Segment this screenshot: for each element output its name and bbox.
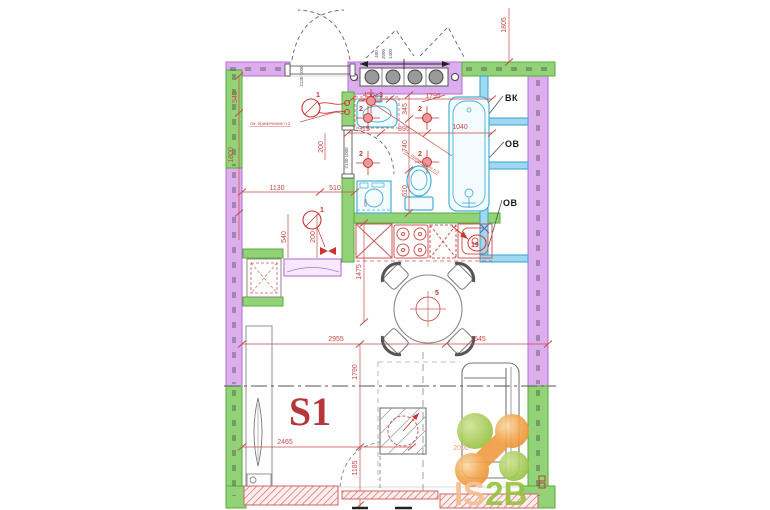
tag-19: 19: [471, 242, 479, 249]
dim-345: 345: [402, 103, 409, 115]
dim-2465: 2465: [277, 439, 293, 446]
tag-5: 5: [435, 290, 439, 297]
tag-2a: 2: [359, 106, 363, 113]
dim-1790: 1790: [352, 364, 359, 380]
dim-window-a: 400: [374, 50, 379, 58]
wall-bottom-left-corner: [226, 486, 246, 508]
note-2: см. примечание п.2: [250, 121, 291, 126]
apartment-label: S1: [289, 389, 331, 434]
dim-1800: 1800: [228, 147, 235, 163]
floor-plan-page: ВК ОВ ОВ: [0, 0, 770, 510]
dim-1475: 1475: [356, 264, 363, 280]
wall-niche-stub-bottom: [243, 297, 283, 306]
stove: [394, 225, 428, 258]
dim-1130: 1130: [269, 185, 284, 192]
dim-entry-door: 2130 1000: [299, 65, 304, 87]
shaft-label-ov1: ОВ: [505, 139, 520, 149]
dim-bath-door: 2130 1000: [344, 147, 349, 169]
dim-895: 895: [398, 126, 410, 133]
dim-200-a: 200: [318, 141, 325, 153]
kitchen-sink: [452, 224, 492, 258]
dim-window-b: 2000: [381, 48, 386, 59]
kitchen-cabinet-x: [356, 224, 392, 258]
dim-1545: 1545: [470, 336, 486, 343]
wall-kitchen-divider: [354, 213, 500, 223]
window-sill-left: [244, 486, 338, 505]
shaft-label-ov2: ОВ: [503, 198, 518, 208]
washing-machine: [357, 181, 391, 213]
tag-3: 3: [379, 92, 383, 99]
console-desk: [284, 259, 341, 276]
dim-1040: 1040: [452, 124, 468, 131]
logo-wordmark: IS2B: [454, 475, 527, 510]
dim-200-b: 200: [310, 231, 317, 243]
tag-2b: 2: [418, 106, 422, 113]
tag-2c: 2: [359, 151, 363, 158]
kitchen-cabinet-dashed: [430, 225, 456, 258]
dim-610: 610: [402, 185, 409, 197]
tag-1a: 1: [316, 92, 320, 99]
entrance-door: [285, 10, 355, 76]
logo-orange-circle-top: [495, 414, 529, 448]
tv-unit: [246, 326, 272, 496]
dim-600: 600: [363, 199, 368, 207]
dim-1805: 1805: [501, 17, 508, 33]
wall-niche-stub-top: [243, 249, 283, 258]
shaft-label-vk: ВК: [505, 93, 518, 103]
dim-540-left: 540: [232, 91, 239, 103]
dim-540-mid: 540: [281, 231, 288, 243]
dim-510: 510: [329, 185, 341, 192]
floor-plan-drawing: ВК ОВ ОВ: [0, 0, 770, 510]
tag-1b: 1: [320, 207, 324, 214]
balcony-threshold: [342, 491, 438, 499]
dim-window-c: 1400: [388, 48, 393, 59]
bathroom: [355, 96, 489, 213]
fridge-niche: [247, 259, 281, 297]
bathtub: [449, 97, 489, 211]
dim-1185: 1185: [352, 460, 359, 475]
riser-point-1b: [303, 211, 336, 255]
dim-1795: 1795: [425, 93, 441, 100]
dim-2955: 2955: [328, 336, 344, 343]
wall-pilaster-b: [342, 176, 354, 262]
